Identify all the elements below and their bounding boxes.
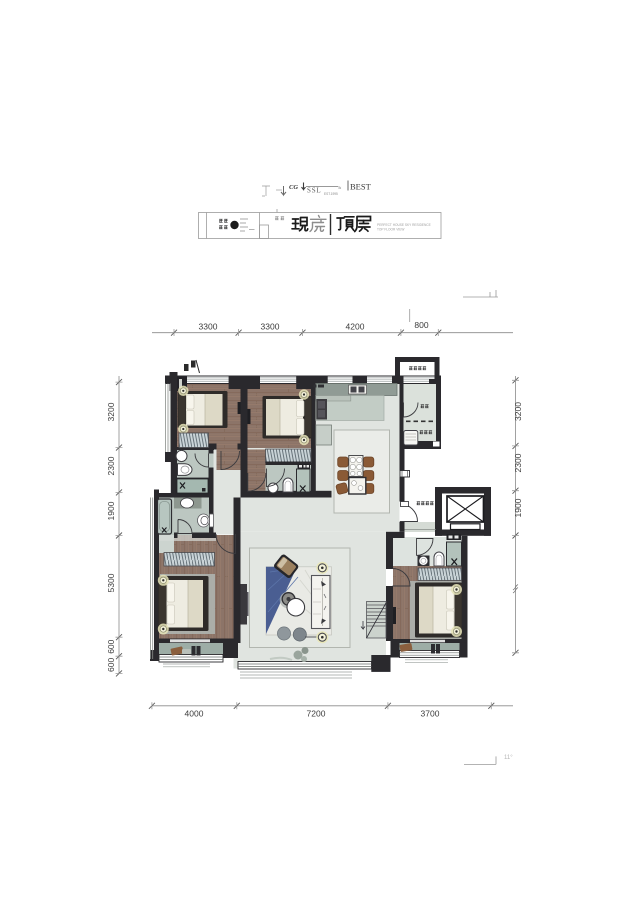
svg-text:4000: 4000 — [185, 709, 204, 719]
svg-text:3200: 3200 — [106, 402, 116, 421]
svg-text:3300: 3300 — [261, 322, 280, 332]
svg-text:SSL: SSL — [307, 187, 321, 195]
svg-text:1900: 1900 — [106, 501, 116, 520]
svg-text:800: 800 — [414, 320, 428, 330]
svg-text:4200: 4200 — [346, 322, 365, 332]
svg-text:BEST: BEST — [350, 182, 372, 192]
svg-text:5300: 5300 — [106, 573, 116, 592]
svg-text:—: — — [249, 227, 255, 233]
svg-text:TOP FLOOR VIEW: TOP FLOOR VIEW — [377, 228, 404, 232]
svg-text:3700: 3700 — [421, 709, 440, 719]
svg-text:PERFECT HOUSE SKY RESIDENCE: PERFECT HOUSE SKY RESIDENCE — [377, 223, 431, 227]
svg-text:3200: 3200 — [513, 402, 523, 421]
svg-text:3300: 3300 — [199, 322, 218, 332]
svg-text:EST.1995: EST.1995 — [324, 192, 338, 196]
svg-text:2300: 2300 — [106, 456, 116, 475]
svg-text:2300: 2300 — [513, 453, 523, 472]
svg-text:1900: 1900 — [513, 498, 523, 517]
svg-text:11°: 11° — [504, 755, 513, 761]
svg-text:600: 600 — [106, 658, 116, 672]
svg-text:7200: 7200 — [307, 709, 326, 719]
svg-text:CG: CG — [289, 184, 298, 191]
svg-text:600: 600 — [106, 639, 116, 653]
